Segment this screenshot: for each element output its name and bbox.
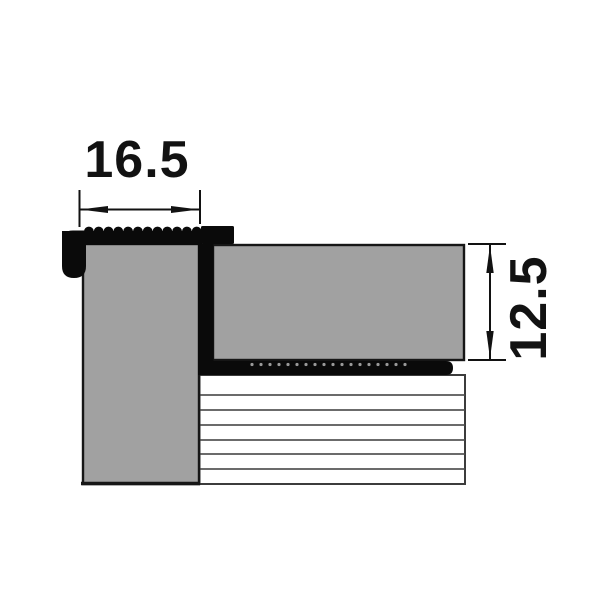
arrow-left-icon [80, 206, 108, 213]
profile-base-flange [198, 361, 453, 375]
width-dimension: 16.5 [80, 131, 201, 227]
profile-right-block [201, 226, 234, 244]
arrow-right-icon [171, 206, 199, 213]
substrate-hatch-area [200, 375, 466, 484]
tread-tile [213, 245, 464, 360]
substrate-outline [200, 375, 466, 484]
profile-nose-hook [62, 231, 86, 279]
height-dimension: 12.5 [468, 244, 558, 361]
profile-serration-teeth [84, 227, 202, 233]
width-dimension-label: 16.5 [84, 131, 189, 189]
arrow-down-icon [486, 331, 493, 359]
height-dimension-label: 12.5 [500, 255, 558, 360]
tile-profile-technical-drawing: 16.5 12.5 [0, 0, 600, 600]
arrow-up-icon [486, 246, 493, 274]
profile-cross-section-diagram: 16.5 12.5 [0, 0, 600, 600]
riser-tile [83, 244, 199, 484]
profile-vertical-leg [198, 244, 214, 375]
